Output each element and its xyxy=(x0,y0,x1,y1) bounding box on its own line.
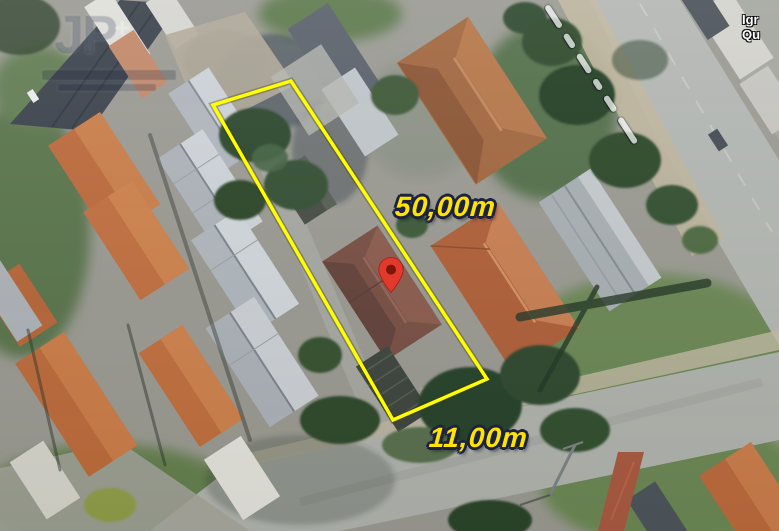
watermark-text-bar xyxy=(58,84,156,91)
watermark-logo-text: JP xyxy=(54,8,116,62)
poi-label-line1: Igr xyxy=(742,12,760,27)
dimension-label-short-side: 11,00m xyxy=(428,424,529,452)
poi-label: Igr Qu xyxy=(742,12,760,42)
dimension-label-long-side: 50,00m xyxy=(394,193,497,221)
watermark-text-bar xyxy=(42,70,176,80)
aerial-screenshot-root: JP + Igr Qu 50,00m 11,00m xyxy=(0,0,779,531)
watermark-plus-icon: + xyxy=(114,14,130,42)
watermark-logo: JP + xyxy=(36,6,206,104)
location-pin-icon xyxy=(378,257,404,293)
poi-label-line2: Qu xyxy=(742,27,760,42)
